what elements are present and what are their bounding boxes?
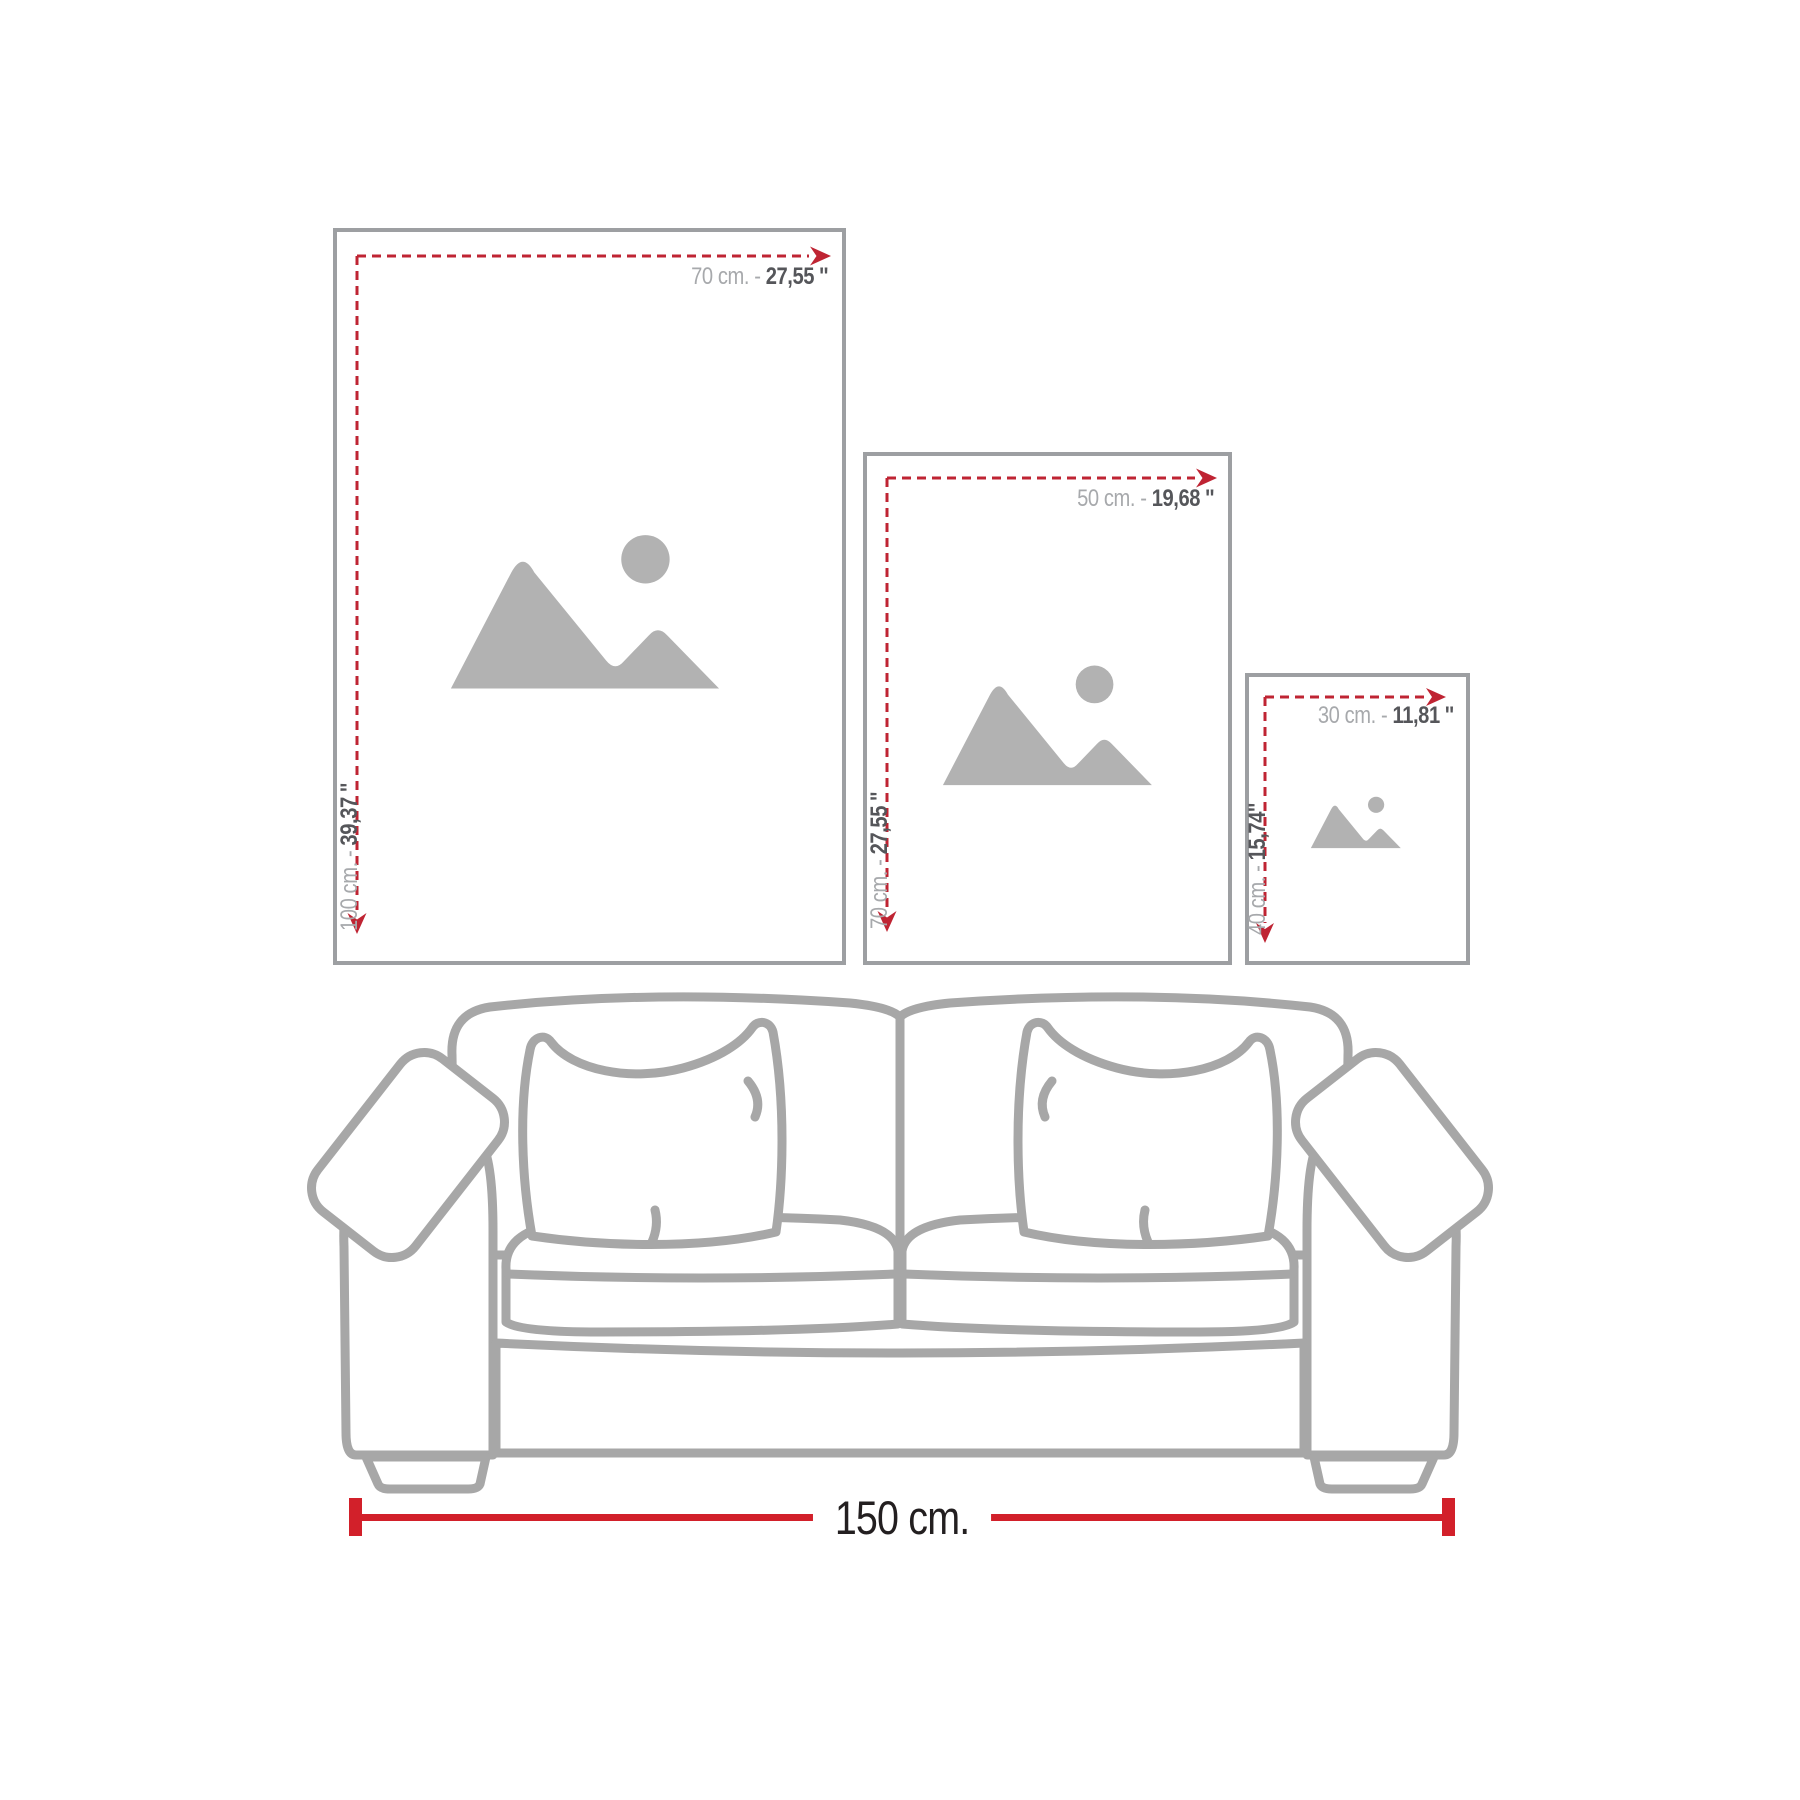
mountains-shape — [451, 562, 719, 689]
width-dimension-label: 50 cm. - 19,68 '' — [1051, 486, 1214, 512]
size-guide-diagram: 70 cm. - 27,55 '' 100 cm. - 39,37 '' 50 … — [0, 0, 1800, 1800]
sun-shape — [1368, 797, 1384, 813]
sofa-foot-right — [1314, 1457, 1434, 1489]
poster-frame-large: 70 cm. - 27,55 '' 100 cm. - 39,37 '' — [333, 228, 846, 965]
poster-frame-small: 30 cm. - 11,81 '' 40 cm. - 15,74'' — [1245, 673, 1470, 965]
sofa-foot-left — [366, 1457, 486, 1489]
height-dimension-label: 70 cm. - 27,55 '' — [867, 766, 893, 929]
sofa-base — [496, 1343, 1304, 1453]
sun-shape — [1076, 666, 1114, 704]
width-dimension-label: 70 cm. - 27,55 '' — [665, 264, 828, 290]
sofa-illustration — [300, 983, 1500, 1498]
mountains-shape — [1311, 806, 1401, 849]
mountains-shape — [943, 686, 1152, 785]
width-dimension-label: 30 cm. - 11,81 '' — [1292, 703, 1454, 729]
height-dimension-label: 40 cm. - 15,74'' — [1245, 778, 1271, 935]
image-placeholder-icon — [925, 650, 1180, 808]
sun-shape — [621, 535, 669, 583]
sofa-width-measure-bar: 150 cm. — [349, 1498, 1455, 1536]
poster-frame-medium: 50 cm. - 19,68 '' 70 cm. - 27,55 '' — [863, 452, 1232, 965]
image-placeholder-icon — [428, 515, 755, 718]
image-placeholder-icon — [1303, 790, 1413, 858]
height-dimension-label: 100 cm. - 39,37 '' — [337, 755, 363, 931]
sofa-width-label: 150 cm. — [813, 1490, 991, 1545]
